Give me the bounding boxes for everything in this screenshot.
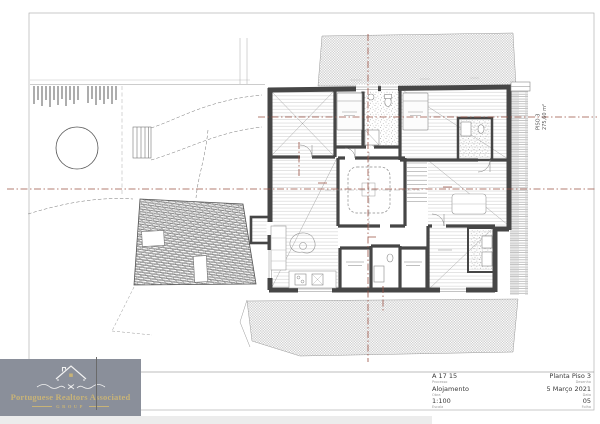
sheet-number-label: Folha <box>547 405 591 409</box>
logo-group-row: GROUP <box>32 404 109 409</box>
exterior-stairs <box>133 127 151 158</box>
title-block-cell: Alojamento Obra <box>432 386 469 397</box>
bed-1 <box>337 93 362 130</box>
title-block-cell: 05 Folha <box>547 398 591 409</box>
floor-area-label: 275,60 m² <box>542 104 548 130</box>
house-icon <box>53 363 89 382</box>
group-line-left <box>32 406 52 407</box>
terrace-hatch-top <box>318 33 516 86</box>
site-lower-lines <box>112 287 250 347</box>
group-line-right <box>89 406 109 407</box>
company-logo: Portuguese Realtors Associated GROUP <box>0 359 141 416</box>
terrace-hatch-bottom <box>247 299 518 356</box>
floor-plan <box>251 78 530 294</box>
title-block-cell: 5 Março 2021 Data <box>547 386 591 397</box>
project-label: Obra <box>432 393 469 397</box>
logo-company-name: Portuguese Realtors Associated <box>11 392 131 402</box>
sheet-number: 05 <box>547 398 591 405</box>
title-block-left: A 17 15 Processo Alojamento Obra 1:100 E… <box>432 373 469 411</box>
project-name: Alojamento <box>432 386 469 393</box>
sheet-date-label: Data <box>547 393 591 397</box>
title-block-cell: A 17 15 Processo <box>432 373 469 384</box>
title-block-divider-line <box>96 357 97 410</box>
roof-eave-hatch <box>510 88 528 295</box>
tree-circle <box>56 127 98 169</box>
logo-group-label: GROUP <box>56 404 85 409</box>
title-block-cell: Planta Piso 3 Desenho <box>547 373 591 384</box>
bed-2 <box>403 93 428 130</box>
sheet-title: Planta Piso 3 <box>547 373 591 380</box>
title-block-cell: 1:100 Escala <box>432 398 469 409</box>
sheet-date: 5 Março 2021 <box>547 386 591 393</box>
scale-value: 1:100 <box>432 398 469 405</box>
title-block-right: Planta Piso 3 Desenho 5 Março 2021 Data … <box>547 373 591 411</box>
scale-label: Escala <box>432 405 469 409</box>
table <box>452 194 486 214</box>
process-label: Processo <box>432 380 469 384</box>
drawing-sheet: PISO 3 275,60 m² Portuguese Realtors Ass… <box>0 0 600 424</box>
floor-label: PISO 3 <box>536 114 542 130</box>
fence-hatch <box>34 86 116 107</box>
process-number: A 17 15 <box>432 373 469 380</box>
sheet-title-label: Desenho <box>547 380 591 384</box>
paved-area <box>134 199 256 285</box>
site-plan <box>28 38 265 347</box>
